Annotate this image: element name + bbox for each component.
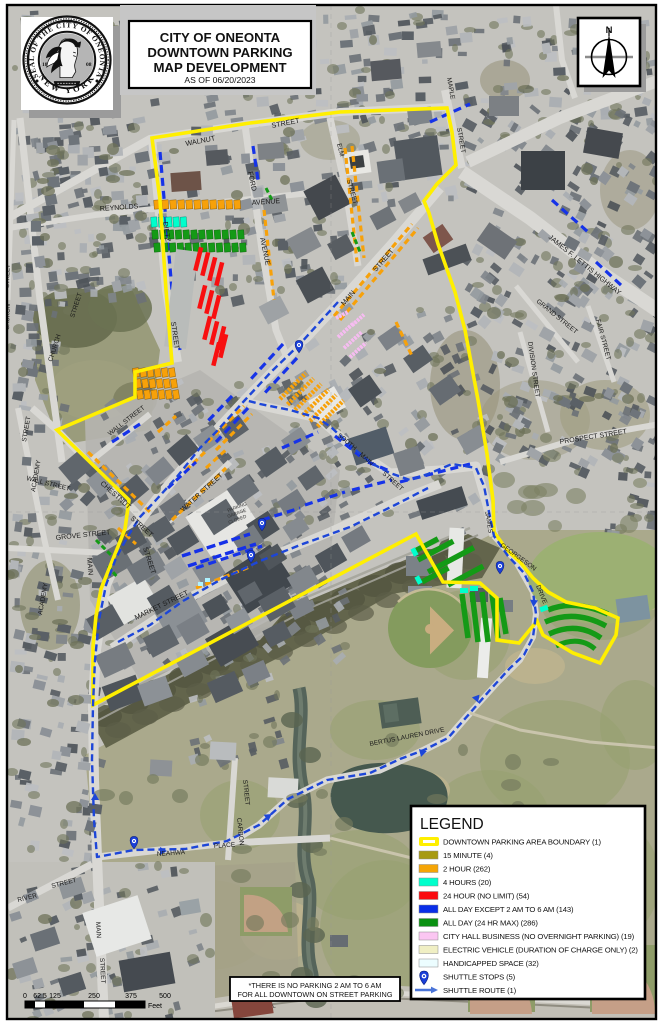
svg-text:ELECTRIC VEHICLE (DURATION OF: ELECTRIC VEHICLE (DURATION OF CHARGE ONL… xyxy=(443,946,638,955)
svg-text:15 MINUTE (4): 15 MINUTE (4) xyxy=(443,851,493,860)
svg-text:AS OF 06/20/2023: AS OF 06/20/2023 xyxy=(184,75,255,85)
svg-text:ALL DAY (24 HR MAX) (286): ALL DAY (24 HR MAX) (286) xyxy=(443,919,538,928)
svg-text:250: 250 xyxy=(88,993,100,1000)
svg-text:*THERE IS NO PARKING 2 AM TO 6: *THERE IS NO PARKING 2 AM TO 6 AM xyxy=(249,981,382,990)
svg-text:0: 0 xyxy=(23,993,27,1000)
svg-text:ALL DAY EXCEPT 2 AM TO 6 AM (1: ALL DAY EXCEPT 2 AM TO 6 AM (143) xyxy=(443,905,574,914)
svg-text:CITY HALL BUSINESS (NO OVERNIG: CITY HALL BUSINESS (NO OVERNIGHT PARKING… xyxy=(443,932,635,941)
svg-text:125: 125 xyxy=(49,993,61,1000)
svg-text:500: 500 xyxy=(159,993,171,1000)
svg-text:DOWNTOWN PARKING: DOWNTOWN PARKING xyxy=(147,45,292,60)
svg-text:STREET: STREET xyxy=(98,958,106,984)
svg-text:2 HOUR (262): 2 HOUR (262) xyxy=(443,865,491,874)
svg-text:DOWNTOWN PARKING AREA BOUNDARY: DOWNTOWN PARKING AREA BOUNDARY (1) xyxy=(443,838,602,847)
svg-text:CITY OF ONEONTA: CITY OF ONEONTA xyxy=(160,30,281,45)
svg-text:SHUTTLE ROUTE (1): SHUTTLE ROUTE (1) xyxy=(443,986,517,995)
svg-text:4 HOURS (20): 4 HOURS (20) xyxy=(443,878,492,887)
svg-text:62.5: 62.5 xyxy=(33,993,47,1000)
svg-text:MAIN: MAIN xyxy=(94,922,102,939)
svg-text:FOR ALL DOWNTOWN ON STREET PAR: FOR ALL DOWNTOWN ON STREET PARKING xyxy=(237,990,392,999)
svg-text:LEGEND: LEGEND xyxy=(420,816,484,833)
svg-text:24 HOUR (NO LIMIT) (54): 24 HOUR (NO LIMIT) (54) xyxy=(443,892,530,901)
svg-text:SHUTTLE STOPS (5): SHUTTLE STOPS (5) xyxy=(443,973,516,982)
svg-text:375: 375 xyxy=(125,993,137,1000)
svg-text:Feet: Feet xyxy=(148,1003,162,1010)
svg-text:08: 08 xyxy=(86,62,92,68)
svg-text:MAP DEVELOPMENT: MAP DEVELOPMENT xyxy=(153,60,286,75)
svg-text:HANDICAPPED SPACE (32): HANDICAPPED SPACE (32) xyxy=(443,959,539,968)
